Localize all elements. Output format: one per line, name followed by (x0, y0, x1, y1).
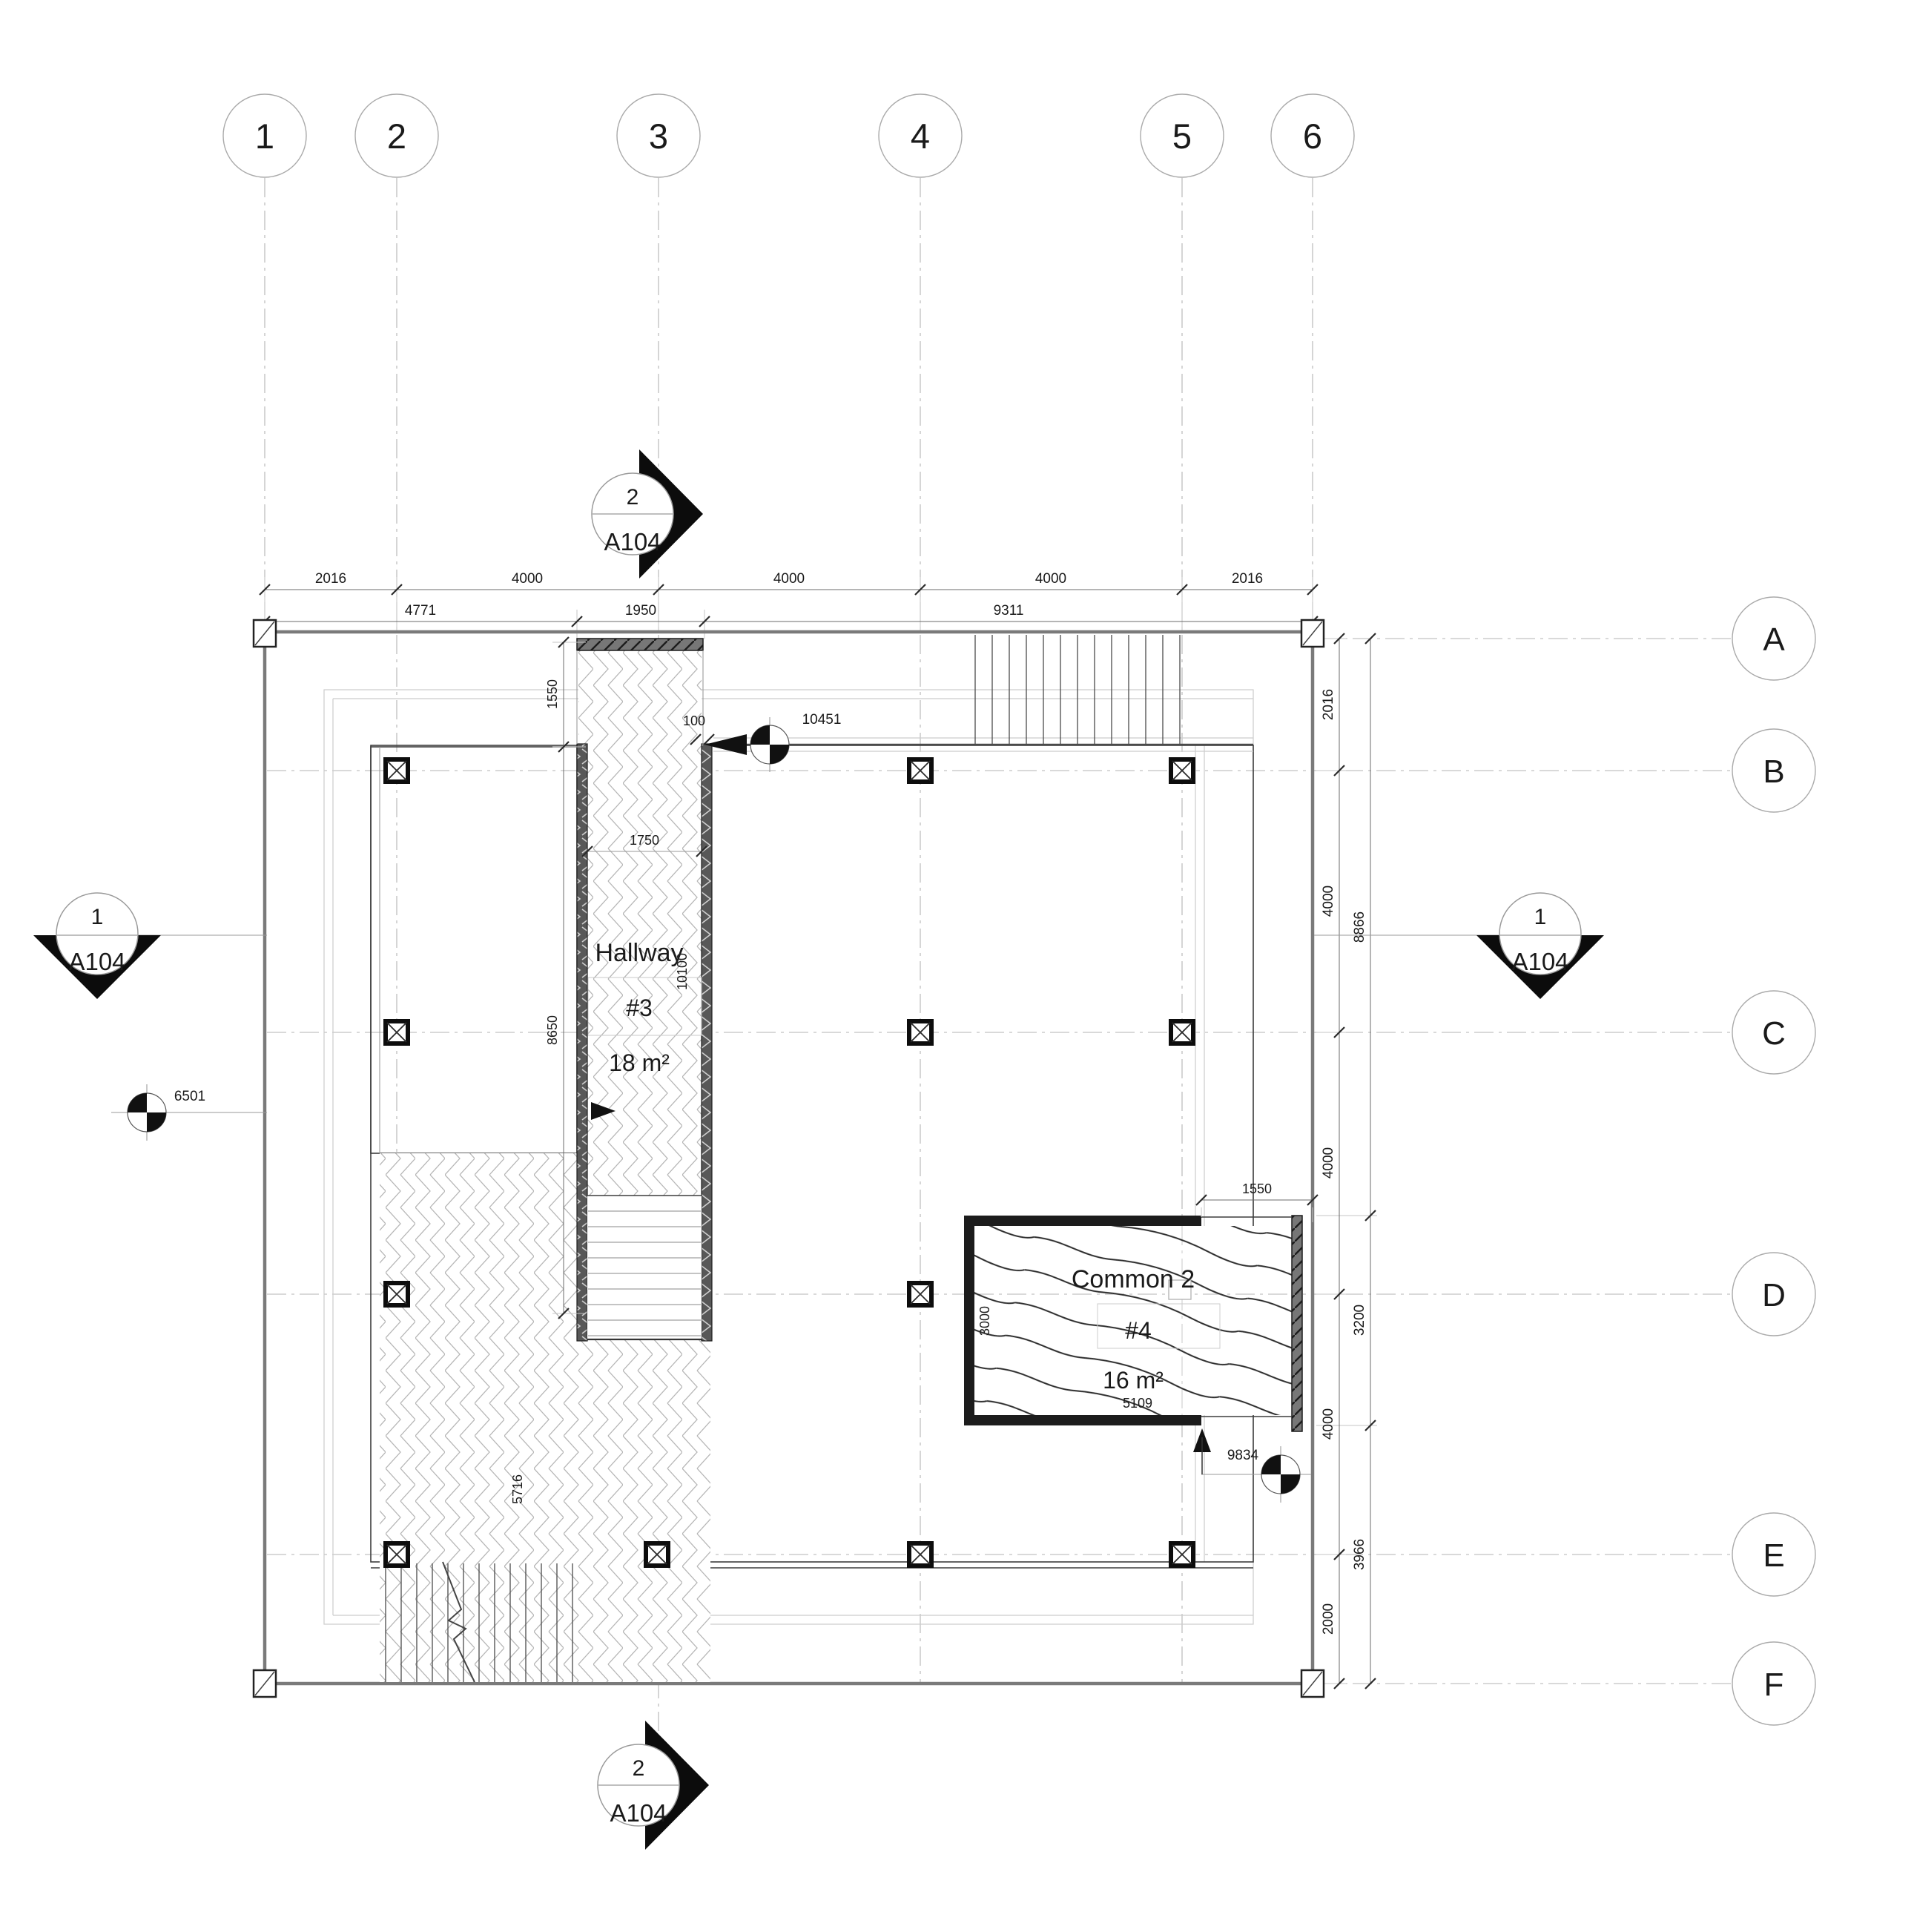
svg-text:B: B (1763, 754, 1784, 790)
column (1171, 1021, 1193, 1044)
svg-text:C: C (1762, 1015, 1786, 1052)
section-number: 1 (1534, 905, 1547, 929)
top-dimension-strings: 2016 4000 4000 4000 2016 4771 1950 9311 (260, 571, 1318, 639)
grid-bubble-1[interactable]: 1 (223, 94, 306, 177)
room-number: #4 (1125, 1317, 1152, 1344)
dim-label[interactable]: 2016 (1232, 571, 1263, 587)
column (386, 1021, 408, 1044)
section-marker-top[interactable]: 2 A104 (592, 449, 703, 578)
column (909, 1021, 931, 1044)
svg-text:3: 3 (649, 116, 668, 156)
svg-text:4: 4 (911, 116, 930, 156)
dim-label[interactable]: 4000 (1321, 1147, 1336, 1178)
common-west-wall (964, 1216, 974, 1425)
corner-marker-a6 (1301, 620, 1324, 647)
room-number: #3 (626, 995, 653, 1021)
section-sheet: A104 (604, 528, 661, 555)
room-northwest (371, 747, 577, 1153)
dim-label[interactable]: 4000 (512, 571, 543, 587)
dim-label[interactable]: 4000 (1321, 886, 1336, 917)
section-sheet: A104 (610, 1799, 667, 1827)
grid-bubble-E[interactable]: E (1732, 1513, 1815, 1596)
dim-label[interactable]: 4771 (405, 603, 436, 619)
grid-bubble-2[interactable]: 2 (355, 94, 438, 177)
section-marker-bottom[interactable]: 2 A104 (598, 1721, 709, 1850)
common-north-wall (964, 1216, 1201, 1226)
dim-label[interactable]: 8866 (1352, 911, 1367, 943)
section-number: 2 (627, 485, 639, 510)
room-name: Hallway (595, 939, 683, 967)
svg-text:A: A (1763, 622, 1785, 658)
section-marker-left[interactable]: 1 A104 (33, 893, 267, 999)
dim-label[interactable]: 5109 (1123, 1396, 1152, 1411)
grid-bubbles-top: 1 2 3 4 5 6 (223, 94, 1354, 177)
dim-label[interactable]: 4000 (1321, 1408, 1336, 1440)
dim-label[interactable]: 5716 (510, 1474, 525, 1504)
dim-label[interactable]: 3200 (1352, 1305, 1367, 1336)
grid-bubble-6[interactable]: 6 (1271, 94, 1354, 177)
grid-bubble-D[interactable]: D (1732, 1253, 1815, 1336)
section-marker-right[interactable]: 1 A104 (1314, 893, 1604, 999)
right-dimension-strings: 2016 4000 4000 4000 2000 8866 3200 3966 (1316, 633, 1377, 1689)
dim-label[interactable]: 4000 (1035, 571, 1066, 587)
column (386, 1543, 408, 1566)
benchmark-icon (1253, 1446, 1309, 1503)
dim-label[interactable]: 10100 (675, 953, 690, 990)
common-south-wall (964, 1415, 1201, 1425)
benchmark-icon (128, 1084, 166, 1141)
room-common-2[interactable]: Common 2 #4 16 m² 3000 5109 (964, 1216, 1302, 1431)
svg-text:6: 6 (1303, 116, 1322, 156)
section-number: 1 (91, 905, 104, 929)
svg-text:F: F (1764, 1666, 1784, 1703)
dim-label: 6501 (174, 1089, 205, 1104)
dim-label[interactable]: 1550 (545, 679, 560, 709)
corner-marker-f6 (1301, 1670, 1324, 1697)
corner-marker-f1 (254, 1670, 276, 1697)
svg-text:D: D (1762, 1277, 1786, 1313)
svg-text:E: E (1763, 1537, 1784, 1574)
column (386, 759, 408, 782)
section-sheet: A104 (68, 948, 125, 975)
svg-text:5: 5 (1172, 116, 1192, 156)
benchmark-icon (750, 717, 789, 772)
grid-bubble-4[interactable]: 4 (879, 94, 962, 177)
corner-marker-a1 (254, 620, 276, 647)
west-benchmark[interactable]: 6501 (111, 1084, 267, 1141)
column (909, 1283, 931, 1305)
section-sheet: A104 (1511, 948, 1568, 975)
dim-label[interactable]: 10451 (802, 712, 842, 728)
dim-label[interactable]: 8650 (545, 1015, 560, 1045)
column (1171, 1543, 1193, 1566)
stair-hallway[interactable] (587, 1196, 702, 1339)
grid-bubble-A[interactable]: A (1732, 597, 1815, 680)
common-east-wall (1292, 1216, 1302, 1431)
dim-label[interactable]: 3966 (1352, 1539, 1367, 1570)
column (1171, 759, 1193, 782)
dim-label[interactable]: 4000 (773, 571, 805, 587)
hallway-east-wall (702, 744, 712, 1341)
grid-bubble-B[interactable]: B (1732, 729, 1815, 812)
north-benchmark[interactable] (750, 717, 789, 772)
column (646, 1543, 668, 1566)
dim-label[interactable]: 2016 (1321, 689, 1336, 720)
hallway-north-wall (577, 639, 703, 650)
south-benchmark[interactable]: 9834 (1193, 1428, 1311, 1503)
column (386, 1283, 408, 1305)
dim-label[interactable]: 100 (683, 713, 705, 728)
dim-label[interactable]: 1550 (1242, 1181, 1272, 1196)
dim-label[interactable]: 2016 (315, 571, 346, 587)
dim-label[interactable]: 2000 (1321, 1603, 1336, 1635)
room-name: Common 2 (1072, 1265, 1195, 1293)
grid-bubble-3[interactable]: 3 (617, 94, 700, 177)
hallway-west-wall (577, 744, 587, 1341)
floor-plan-page: 2016 4000 4000 4000 2016 4771 1950 9311 (0, 0, 1914, 1928)
dim-label: 9834 (1227, 1448, 1259, 1463)
grid-bubble-C[interactable]: C (1732, 991, 1815, 1074)
room-area: 18 m² (609, 1049, 670, 1076)
dim-label[interactable]: 3000 (977, 1306, 992, 1336)
section-number: 2 (633, 1756, 645, 1781)
dim-label[interactable]: 1750 (630, 833, 659, 848)
floor-plan-canvas: 2016 4000 4000 4000 2016 4771 1950 9311 (0, 0, 1914, 1928)
dim-label[interactable]: 9311 (994, 603, 1024, 619)
room-area: 16 m² (1103, 1367, 1164, 1394)
column (909, 759, 931, 782)
svg-text:2: 2 (387, 116, 406, 156)
grid-bubble-F[interactable]: F (1732, 1642, 1815, 1725)
dim-label[interactable]: 1950 (625, 603, 656, 619)
grid-bubble-5[interactable]: 5 (1141, 94, 1224, 177)
grid-bubbles-right: A B C D E F (1732, 597, 1815, 1725)
svg-text:1: 1 (255, 116, 274, 156)
column (909, 1543, 931, 1566)
